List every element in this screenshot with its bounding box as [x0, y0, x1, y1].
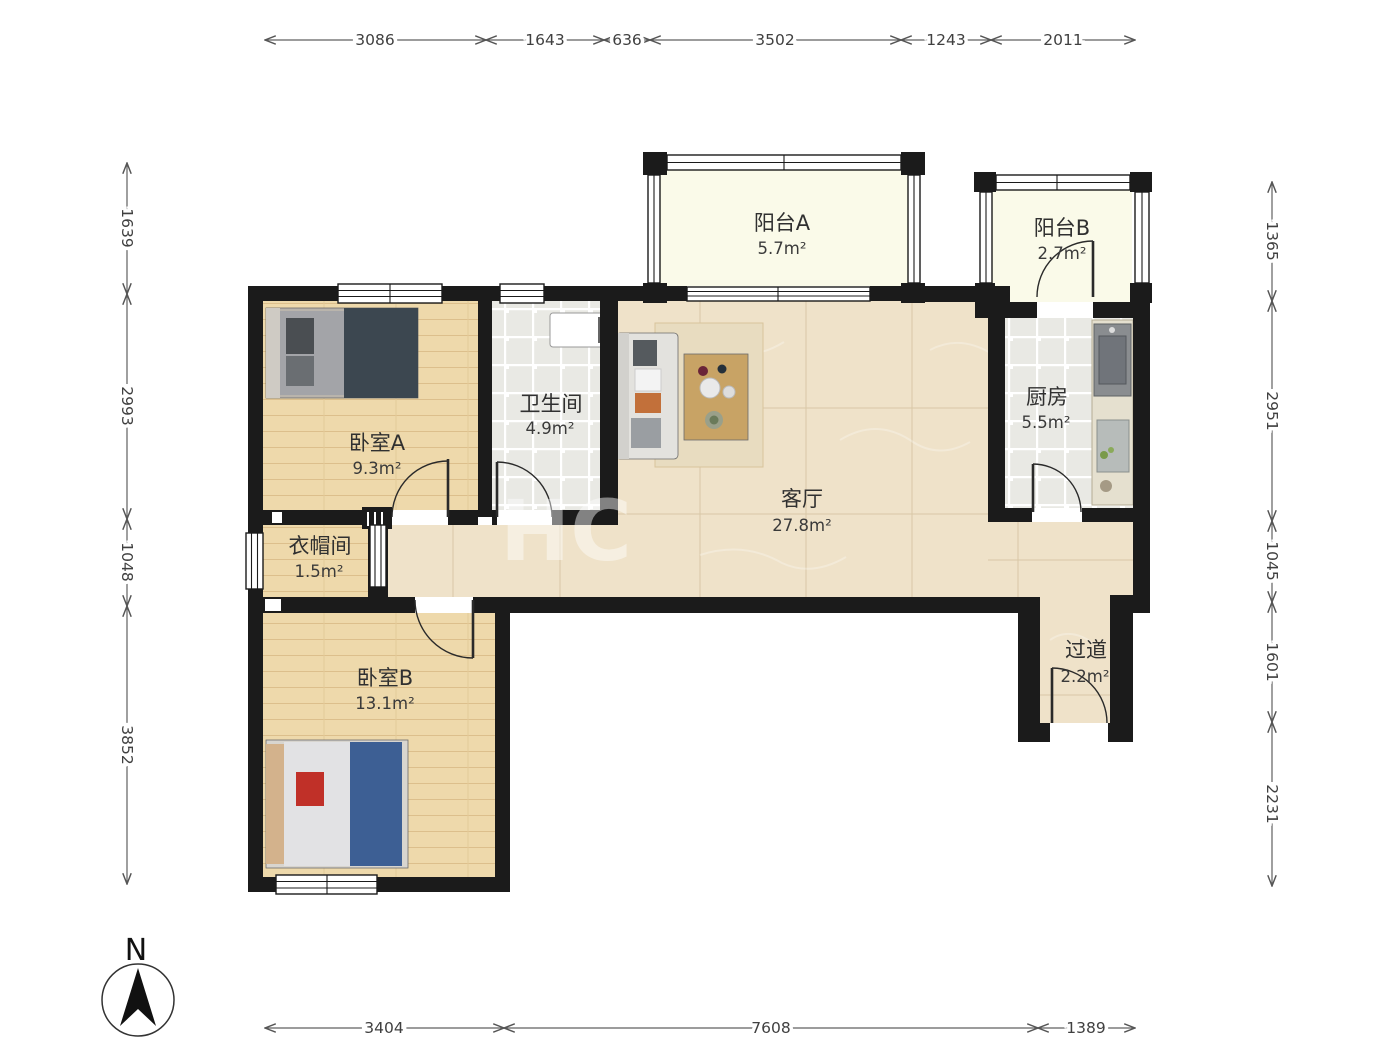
svg-text:卫生间: 卫生间 — [520, 392, 583, 416]
dim-right-3: 1601 — [1263, 642, 1281, 681]
svg-text:厨房: 厨房 — [1026, 385, 1068, 409]
bathroom-window — [500, 284, 544, 303]
dim-right: 1365 2951 1045 1601 2231 — [1263, 182, 1281, 886]
bedroom-b-window — [276, 875, 377, 894]
dim-bottom: 3404 7608 1389 — [265, 1019, 1135, 1037]
kitchen-counter — [1092, 320, 1133, 505]
dim-left-2: 1048 — [118, 542, 136, 581]
balcony-a-rail-left — [648, 175, 660, 283]
balcony-a-rail-right — [908, 175, 920, 283]
dim-left-1: 2993 — [118, 386, 136, 425]
label-bathroom: 卫生间 4.9m² — [520, 392, 583, 438]
svg-text:阳台A: 阳台A — [754, 211, 811, 235]
pillar — [1130, 172, 1152, 192]
compass: N — [102, 933, 174, 1036]
svg-text:1.5m²: 1.5m² — [295, 562, 344, 581]
pillar — [643, 283, 667, 303]
floor-plan: HC 阳台A 5.7m² 阳台B 2.7m² 卧室A 9.3m² 卫生间 4.9… — [0, 0, 1400, 1050]
pillar — [975, 283, 995, 303]
bedroom-a-window — [338, 284, 442, 303]
dim-right-2: 1045 — [1263, 541, 1281, 580]
bed-a — [266, 308, 418, 398]
dim-left-3: 3852 — [118, 725, 136, 764]
svg-text:卧室A: 卧室A — [349, 431, 406, 455]
pillar — [974, 172, 996, 192]
svg-text:过道: 过道 — [1065, 638, 1107, 662]
svg-text:2.2m²: 2.2m² — [1061, 667, 1110, 686]
dim-right-4: 2231 — [1263, 784, 1281, 823]
svg-text:5.5m²: 5.5m² — [1022, 413, 1071, 432]
cloakroom-partition-window — [370, 525, 386, 587]
dim-top-3: 3502 — [755, 31, 794, 49]
dim-left-0: 1639 — [118, 208, 136, 247]
dim-top: 3086 1643 636 3502 1243 2011 — [265, 31, 1135, 49]
balcony-b-rail-top — [996, 175, 1130, 190]
bed-b — [266, 740, 408, 868]
label-cloakroom: 衣帽间 1.5m² — [289, 534, 352, 581]
label-bedroom-b: 卧室B 13.1m² — [355, 666, 414, 713]
label-balcony-b: 阳台B 2.7m² — [1034, 216, 1090, 263]
dim-right-0: 1365 — [1263, 221, 1281, 260]
pillar — [901, 283, 925, 303]
svg-text:阳台B: 阳台B — [1034, 216, 1090, 240]
svg-text:客厅: 客厅 — [781, 487, 823, 511]
label-kitchen: 厨房 5.5m² — [1022, 385, 1071, 432]
dim-right-1: 2951 — [1263, 391, 1281, 430]
dim-top-5: 2011 — [1043, 31, 1082, 49]
svg-text:9.3m²: 9.3m² — [353, 459, 402, 478]
label-bedroom-a: 卧室A 9.3m² — [349, 431, 406, 478]
cloakroom-side-window — [246, 533, 263, 589]
compass-north-label: N — [125, 933, 147, 968]
living-room-slider-window — [687, 287, 870, 301]
dim-left: 1639 2993 1048 3852 — [118, 163, 136, 884]
dim-bottom-2: 1389 — [1066, 1019, 1105, 1037]
balcony-b-rail-left — [980, 192, 992, 283]
balcony-a-rail-top — [667, 155, 901, 170]
svg-text:卧室B: 卧室B — [357, 666, 413, 690]
dim-top-4: 1243 — [926, 31, 965, 49]
dim-top-1: 1643 — [525, 31, 564, 49]
dim-bottom-1: 7608 — [751, 1019, 790, 1037]
svg-text:衣帽间: 衣帽间 — [289, 534, 352, 558]
pillar — [1130, 283, 1152, 303]
floor-plan-page: HC 阳台A 5.7m² 阳台B 2.7m² 卧室A 9.3m² 卫生间 4.9… — [0, 0, 1400, 1050]
svg-text:13.1m²: 13.1m² — [355, 694, 414, 713]
pillar — [901, 152, 925, 175]
label-balcony-a: 阳台A 5.7m² — [754, 211, 811, 258]
pillar — [643, 152, 667, 175]
svg-text:4.9m²: 4.9m² — [526, 419, 575, 438]
svg-text:2.7m²: 2.7m² — [1038, 244, 1087, 263]
dim-bottom-0: 3404 — [364, 1019, 403, 1037]
watermark: HC — [500, 482, 632, 580]
balcony-b-rail-right — [1135, 192, 1149, 283]
svg-text:5.7m²: 5.7m² — [758, 239, 807, 258]
dim-top-0: 3086 — [355, 31, 394, 49]
living-room-set — [616, 323, 763, 467]
svg-text:27.8m²: 27.8m² — [772, 516, 831, 535]
dim-top-2: 636 — [612, 31, 642, 49]
